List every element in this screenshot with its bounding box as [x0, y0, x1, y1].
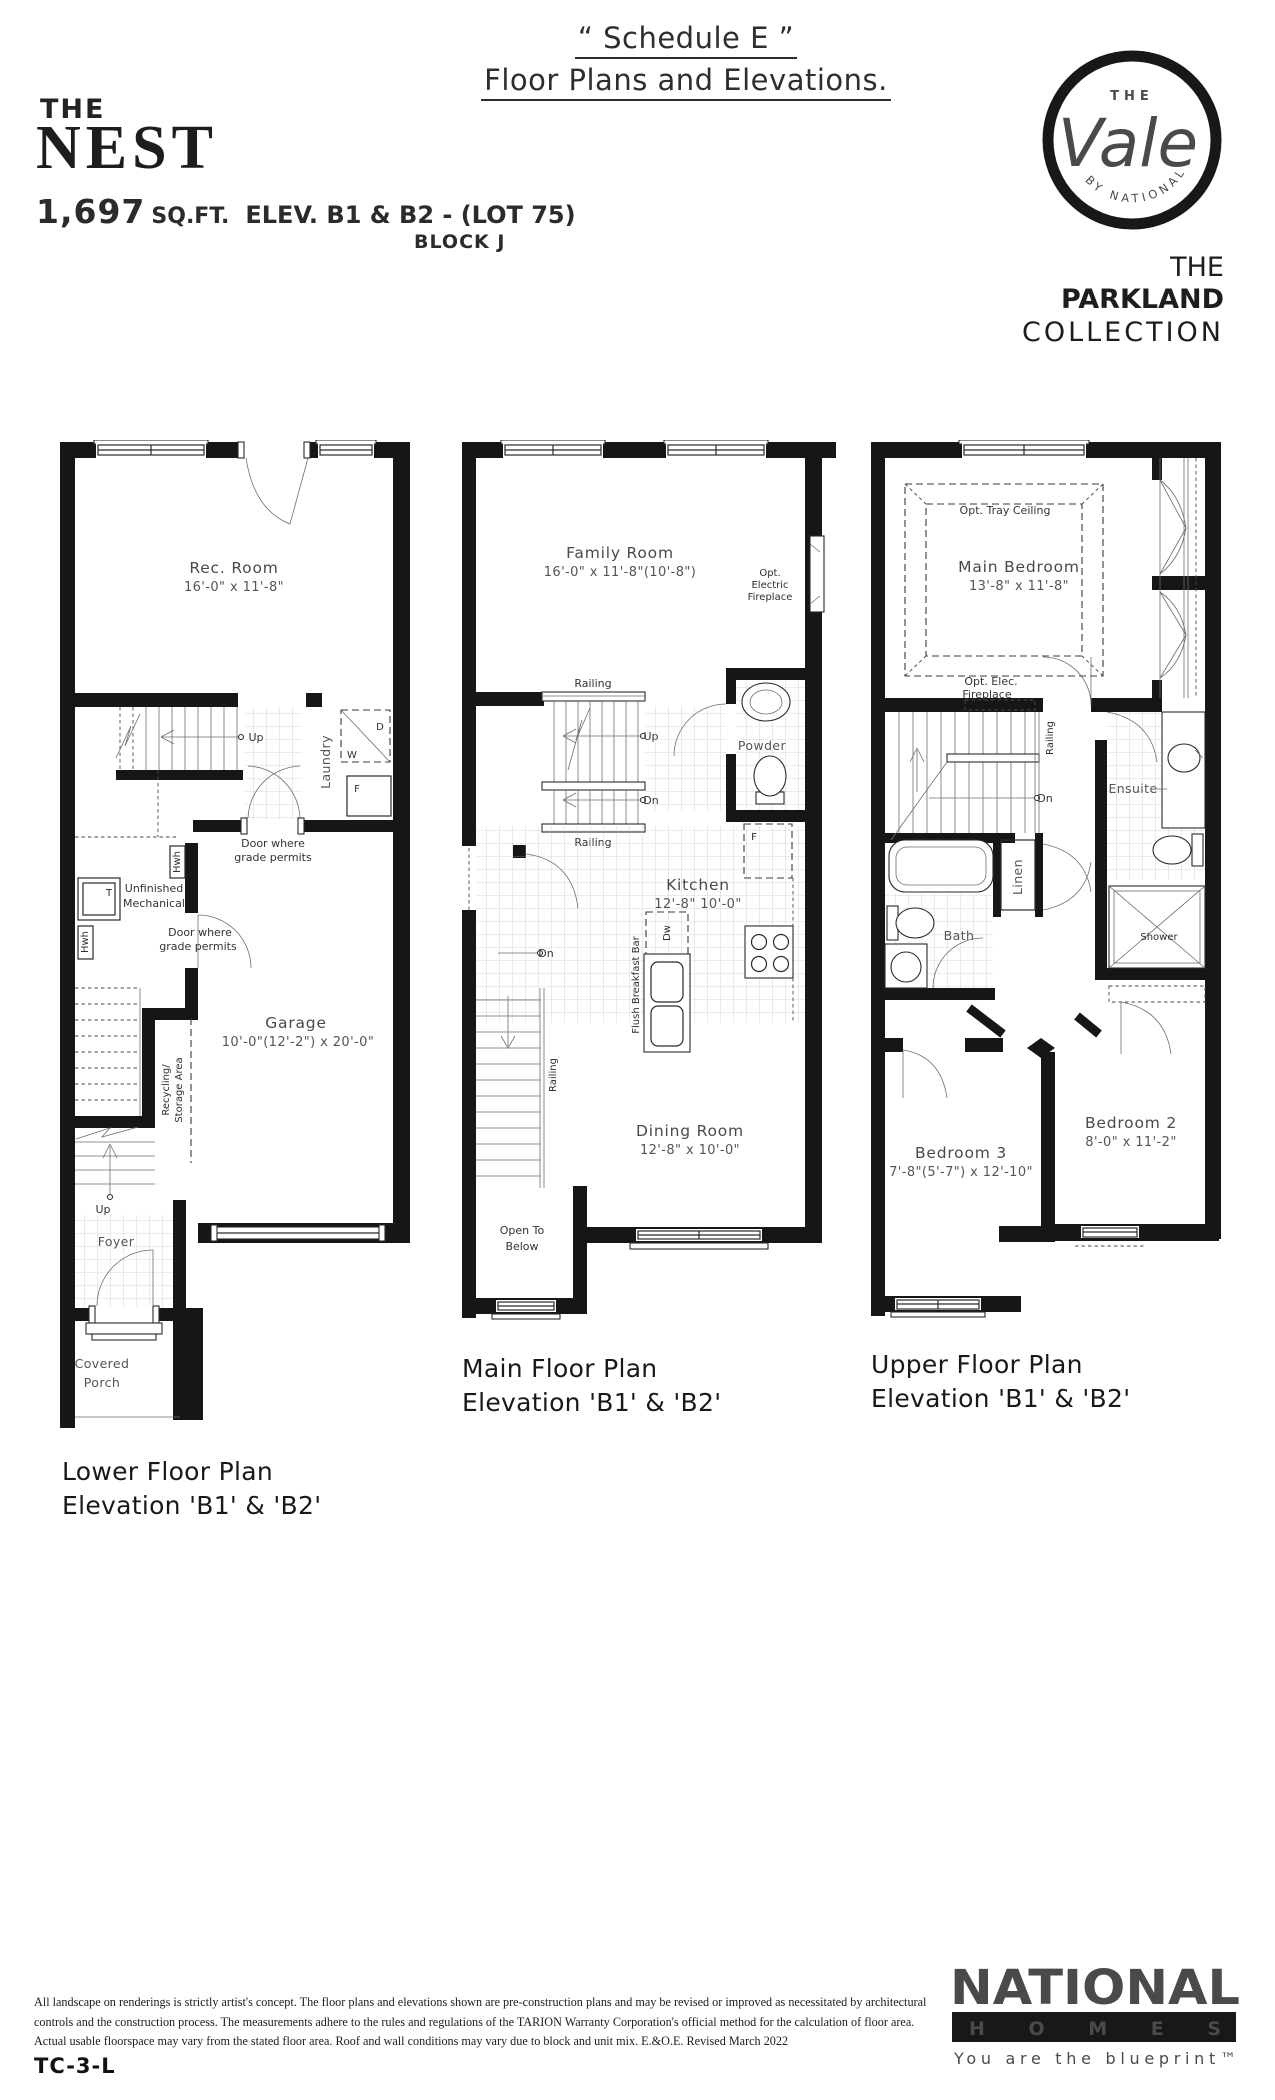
main-plan-caption: Main Floor Plan Elevation 'B1' & 'B2' — [462, 1352, 721, 1420]
schedule-line1: “ Schedule E ” — [575, 24, 797, 59]
recycling-storage: Recycling/ Storage Area — [161, 1018, 191, 1163]
breakfast-bar-label: Flush Breakfast Bar — [631, 935, 642, 1033]
bath-room — [885, 840, 993, 988]
schedule-line2: Floor Plans and Elevations. — [481, 66, 891, 101]
garage-door — [211, 1225, 385, 1241]
shower-stall — [1109, 886, 1205, 968]
upper-stairs — [891, 712, 1040, 840]
garage-label: Garage — [265, 1014, 327, 1032]
linen-label: Linen — [1010, 859, 1025, 895]
rec-room-label: Rec. Room — [189, 559, 278, 577]
porch-line2: Porch — [84, 1375, 120, 1390]
hwh2-label: Hwh — [80, 931, 91, 953]
tray-ceiling-label: Opt. Tray Ceiling — [960, 504, 1051, 517]
main-floor-plan: Family Room 16'-0" x 11'-8"(10'-8") Opt.… — [460, 440, 838, 1320]
upper-caption-line1: Upper Floor Plan — [871, 1348, 1130, 1382]
lower-floor-plan: Rec. Room 16'-0" x 11'-8" Up Laundry D W… — [58, 440, 410, 1430]
upper-caption-line2: Elevation 'B1' & 'B2' — [871, 1382, 1130, 1416]
bedroom2-dims: 8'-0" x 11'-2" — [1085, 1135, 1176, 1150]
recycling-line2: Storage Area — [174, 1057, 185, 1122]
hwh1-label: Hwh — [172, 851, 183, 873]
washer-label: W — [347, 750, 357, 761]
main-caption-line1: Main Floor Plan — [462, 1352, 721, 1386]
bedroom2-label: Bedroom 2 — [1085, 1114, 1177, 1132]
sqft-unit: SQ.FT. — [151, 204, 229, 229]
laundry-label: Laundry — [318, 735, 333, 789]
vale-logo-the: THE — [1110, 89, 1154, 104]
opt-fireplace-line2: Electric — [751, 580, 788, 591]
recycling-line1: Recycling/ — [161, 1064, 172, 1116]
foyer-area — [75, 1215, 173, 1308]
model-name: NEST — [36, 116, 218, 181]
schedule-title: “ Schedule E ” Floor Plans and Elevation… — [430, 24, 942, 101]
grade-door-2-line1: Door where — [168, 926, 232, 939]
laundry-area: Laundry D W F — [318, 710, 391, 816]
plan-code: TC-3-L — [34, 2054, 116, 2078]
entry-door-swing — [246, 458, 308, 524]
main-bedroom-label: Main Bedroom — [958, 558, 1080, 576]
upper-dn-label: Dn — [1037, 792, 1052, 805]
upper-top-window — [959, 440, 1089, 458]
national-wordmark: NATIONAL — [950, 1960, 1240, 2016]
sqft-value: 1,697 — [36, 192, 145, 231]
fridge-label: F — [751, 832, 757, 843]
block-label: BLOCK J — [414, 231, 505, 253]
rec-room-dims: 16'-0" x 11'-8" — [184, 580, 284, 595]
family-room-label: Family Room — [566, 544, 674, 562]
upper-railing-label: Railing — [1045, 721, 1056, 755]
disclaimer-line2: controls and the construction process. T… — [34, 2013, 1049, 2033]
lower-mid-stairs — [116, 707, 302, 820]
fireplace-niche — [810, 536, 824, 612]
main-caption-line2: Elevation 'B1' & 'B2' — [462, 1386, 721, 1420]
vale-logo: THE Vale BY NATIONAL — [1036, 40, 1228, 245]
garage-dims: 10'-0"(12'-2") x 20'-0" — [222, 1035, 374, 1050]
powder-label: Powder — [738, 738, 787, 753]
disclaimer-text: All landscape on renderings is strictly … — [34, 1993, 1049, 2052]
disclaimer-line1: All landscape on renderings is strictly … — [34, 1993, 1049, 2013]
otb-line2: Below — [505, 1240, 538, 1253]
elec-fireplace-line2: Fireplace — [962, 688, 1011, 701]
lower-plan-caption: Lower Floor Plan Elevation 'B1' & 'B2' — [62, 1455, 321, 1523]
grade-door-2-line2: grade permits — [159, 940, 237, 953]
ensuite-label: Ensuite — [1108, 781, 1157, 796]
collection-title: THE PARKLAND COLLECTION — [1008, 252, 1224, 349]
dining-room-dims: 12'-8" x 10'-0" — [640, 1143, 740, 1158]
upper-plan-caption: Upper Floor Plan Elevation 'B1' & 'B2' — [871, 1348, 1130, 1416]
main-stairs — [542, 692, 646, 832]
kitchen-label: Kitchen — [666, 876, 730, 894]
foyer-label: Foyer — [98, 1234, 135, 1249]
elevation-info: ELEV. B1 & B2 - (LOT 75) — [245, 201, 575, 229]
dryer-label: D — [376, 722, 384, 733]
railing-side-label: Railing — [548, 1058, 559, 1092]
family-room-dims: 16'-0" x 11'-8"(10'-8") — [544, 565, 696, 580]
dining-room-label: Dining Room — [636, 1122, 744, 1140]
opt-fireplace-line1: Opt. — [759, 568, 780, 579]
railing-top-label: Railing — [574, 677, 611, 690]
disclaimer-line3: Actual usable floorspace may vary from t… — [34, 2032, 1049, 2052]
dishwasher-label: Dw — [662, 925, 673, 941]
shower-label: Shower — [1140, 932, 1178, 943]
elec-fireplace-line1: Opt. Elec. — [964, 675, 1017, 688]
otb-line1: Open To — [500, 1224, 545, 1237]
model-spec: 1,697SQ.FT.ELEV. B1 & B2 - (LOT 75) — [36, 192, 576, 231]
lower-caption-line1: Lower Floor Plan — [62, 1455, 321, 1489]
ensuite-room — [1107, 712, 1205, 880]
collection-name: PARKLAND — [1061, 284, 1224, 315]
grade-door-1-line2: grade permits — [234, 851, 312, 864]
bedroom3-label: Bedroom 3 — [915, 1144, 1007, 1162]
brand-tagline: You are the blueprint™ — [953, 2049, 1236, 2068]
grade-door-1-line1: Door where — [241, 837, 305, 850]
tank-label: T — [105, 888, 113, 899]
upper-floor-plan: Opt. Tray Ceiling Main Bedroom 13'-8" x … — [869, 440, 1221, 1320]
kitchen-dims: 12'-8" 10'-0" — [654, 897, 741, 912]
freezer-label: F — [354, 784, 360, 795]
bath-label: Bath — [944, 928, 975, 943]
porch-line1: Covered — [75, 1356, 130, 1371]
collection-the: THE — [1170, 252, 1224, 283]
side-dn-label: Dn — [538, 947, 553, 960]
bedroom3-dims: 7'-8"(5'-7") x 12'-10" — [889, 1165, 1033, 1180]
unfinished-line1: Unfinished — [125, 882, 183, 895]
floorplan-document: “ Schedule E ” Floor Plans and Elevation… — [0, 0, 1275, 2100]
opt-fireplace-line3: Fireplace — [748, 592, 793, 603]
foyer-up-label: Up — [95, 1203, 110, 1216]
lower-up-label: Up — [248, 731, 263, 744]
main-bedroom-dims: 13'-8" x 11'-8" — [969, 579, 1069, 594]
lower-caption-line2: Elevation 'B1' & 'B2' — [62, 1489, 321, 1523]
unfinished-line2: Mechanical — [123, 897, 185, 910]
collection-line2: COLLECTION — [1008, 317, 1224, 349]
national-homes-logo: NATIONAL HOMES You are the blueprint™ — [942, 1960, 1248, 2078]
